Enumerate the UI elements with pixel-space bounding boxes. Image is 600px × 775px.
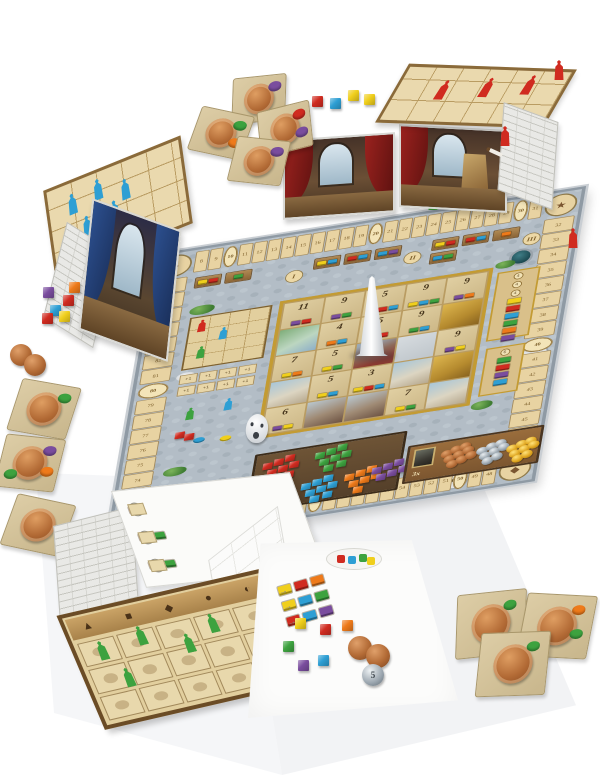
bush — [470, 399, 493, 411]
photo-stage: ● ★ ◆ ◐ ▲ ◆ 8910111213141516171819202122… — [0, 0, 600, 775]
paint-cube — [289, 460, 300, 468]
coin-tile — [475, 631, 552, 698]
bonus-tile: +1 — [198, 370, 218, 382]
green-meeple — [202, 612, 224, 634]
score-track-cell: 9 — [207, 247, 224, 270]
paint-tile — [466, 237, 476, 243]
loose-coins-bottom: 5 — [348, 636, 408, 692]
paint-tile — [322, 366, 332, 372]
market-stall — [492, 226, 521, 241]
paint-tile — [272, 425, 282, 431]
score-track-cell: 19 — [353, 224, 370, 247]
copper-coin — [24, 354, 46, 376]
price-circle: 4 — [513, 272, 524, 280]
paint-tile — [446, 240, 456, 246]
silver-coin: 5 — [362, 664, 384, 686]
paint-tile — [433, 255, 443, 261]
paint-cube — [375, 473, 386, 481]
paint-tile — [444, 253, 454, 259]
paint-tile — [317, 260, 327, 266]
coin-piles — [435, 428, 539, 476]
bonus-tile: +1 — [236, 375, 256, 387]
paint-tile — [327, 259, 337, 265]
bonus-tile: +1 — [176, 385, 196, 397]
paint-tile — [269, 81, 282, 92]
blue-disc — [193, 436, 206, 443]
paint-tile — [198, 279, 208, 285]
paint-tile — [318, 393, 328, 399]
green-meeple — [118, 666, 140, 688]
paint-tile — [301, 318, 311, 324]
window — [320, 143, 352, 185]
paint-cube — [330, 98, 341, 109]
price-circle: 6 — [499, 348, 510, 356]
paint-tile — [409, 327, 419, 333]
market-stall — [373, 245, 402, 260]
paint-tile — [504, 599, 517, 610]
paint-tile — [395, 406, 405, 412]
tile-number: 11 — [283, 299, 324, 315]
bonus-tile: +1 — [179, 373, 199, 385]
paint-cube — [69, 282, 80, 293]
gold-pile — [502, 434, 547, 475]
paint-tile — [353, 387, 363, 393]
paint-tile — [294, 579, 309, 591]
paint-tile — [502, 231, 512, 237]
bonus-tile: +1 — [238, 364, 258, 376]
fresco-tile — [426, 377, 469, 408]
paint-tile — [292, 371, 302, 377]
paint-cube — [295, 618, 306, 629]
paint-tile — [331, 314, 341, 320]
curtain — [365, 134, 393, 198]
market-stall — [343, 250, 372, 265]
section-label: II — [403, 250, 423, 265]
paint-cube — [42, 313, 53, 324]
blue-meeple — [216, 326, 231, 340]
tile-paints — [263, 422, 303, 432]
blue-meeple — [221, 397, 236, 411]
paint-tile — [388, 249, 398, 255]
paint-tile — [492, 379, 506, 387]
yellow-disc — [219, 435, 232, 442]
window — [113, 221, 146, 296]
fresco-tile: 6 — [262, 403, 305, 434]
market-stall — [429, 249, 458, 264]
paint-cube — [320, 624, 331, 635]
fresco-tile — [303, 397, 346, 428]
paint-tile — [454, 294, 464, 300]
market-stall — [194, 273, 223, 288]
red-meeple — [517, 75, 542, 95]
red-meeple — [474, 77, 499, 97]
green-meeple — [193, 345, 208, 359]
paint-tile — [477, 235, 487, 241]
paint-cube — [59, 311, 70, 322]
paint-cube — [43, 287, 54, 298]
bonus-tile: +1 — [218, 367, 238, 379]
paint-tile — [419, 300, 429, 306]
coin-tile — [6, 378, 82, 440]
paint-tile — [364, 385, 374, 391]
paint-cube — [364, 94, 375, 105]
section-label: I — [284, 269, 304, 284]
paint-cube — [298, 660, 309, 671]
paint-tile — [208, 277, 218, 283]
fresco-tile — [344, 390, 387, 421]
paint-tile — [435, 241, 445, 247]
paint-tile — [338, 338, 348, 344]
paint-tile — [314, 590, 329, 602]
coin-tiles-top — [194, 72, 324, 192]
blue-meeple — [65, 191, 81, 217]
paint-tile — [388, 305, 398, 311]
paint-tile — [377, 251, 387, 257]
fresco-tile: 7 — [385, 384, 428, 415]
paint-cube — [283, 641, 294, 652]
paint-tile — [358, 254, 368, 260]
paint-tile — [328, 391, 338, 397]
paint-tile — [319, 605, 334, 617]
paint-tile — [292, 108, 306, 121]
paint-tile — [572, 605, 587, 616]
paint-cube — [342, 620, 353, 631]
paint-tile — [283, 424, 293, 430]
market-stall — [312, 255, 341, 270]
corner-glyph: ★ — [554, 199, 567, 211]
paint-tile — [456, 345, 466, 351]
aid-tile — [127, 503, 147, 516]
paint-tile — [310, 574, 325, 586]
coin-tile — [227, 136, 292, 187]
paint-cube — [341, 450, 352, 458]
paint-tile — [281, 373, 291, 379]
coin-tiles-right — [448, 586, 598, 716]
loose-cubes-left — [20, 280, 90, 340]
paint-cube — [348, 90, 359, 101]
paint-cube — [63, 295, 74, 306]
paint-tile — [375, 384, 385, 390]
paint-tile — [2, 469, 17, 480]
price-circle: 4 — [510, 289, 521, 297]
paint-tile — [429, 298, 439, 304]
tile-paints — [385, 403, 425, 413]
paint-tile — [408, 302, 418, 308]
paint-tile — [234, 273, 244, 279]
blue-meeple — [117, 176, 133, 202]
easel — [461, 153, 488, 191]
paint-tile — [291, 320, 301, 326]
paint-cube — [359, 476, 370, 484]
loose-coins-left — [8, 344, 58, 384]
tile-number: 9 — [447, 273, 488, 289]
paint-cube — [309, 495, 320, 503]
paint-cube — [322, 490, 333, 498]
bonus-tile: +1 — [196, 382, 216, 394]
green-meeple — [130, 624, 152, 646]
paint-tile — [465, 293, 475, 299]
courtyard: +1+1+1+1+1+1+1+1 — [164, 362, 266, 468]
paint-tile — [406, 404, 416, 410]
paint-tile — [527, 641, 541, 651]
player-screen-panel — [399, 124, 507, 213]
paint-cube — [336, 459, 347, 467]
section-label: III — [522, 231, 542, 246]
paint-cube — [386, 469, 397, 477]
paint-tile — [270, 146, 285, 157]
paint-tile — [419, 325, 429, 331]
market-stall — [224, 269, 253, 284]
red-meeple — [430, 80, 455, 100]
paint-cube — [352, 486, 363, 494]
paint-cube — [327, 481, 338, 489]
paint-tile — [445, 347, 455, 353]
green-meeple — [183, 407, 198, 421]
red-meeple — [195, 319, 210, 333]
paint-tile — [327, 340, 337, 346]
price-circle: 4 — [511, 280, 522, 288]
multiplier-label: 3x — [412, 470, 421, 477]
green-meeple — [178, 632, 200, 654]
paint-tile — [378, 306, 388, 312]
green-meeple — [91, 640, 113, 662]
paint-tile — [333, 365, 343, 371]
paint-cube — [318, 655, 329, 666]
coin-tile — [0, 433, 66, 492]
family-portrait — [411, 447, 436, 469]
window — [434, 134, 465, 177]
bonus-tile: +1 — [216, 378, 236, 390]
floor — [401, 185, 505, 211]
paint-tile — [39, 466, 54, 477]
curtain — [401, 126, 428, 192]
palette-emblem — [326, 548, 382, 570]
tile-number: 9 — [406, 279, 447, 295]
paint-tile — [298, 594, 313, 606]
paint-tile — [347, 255, 357, 261]
paint-cube — [323, 464, 334, 472]
paint-tile — [43, 446, 58, 457]
market-stall — [462, 231, 491, 246]
paint-tile — [500, 334, 514, 342]
tile-number: 9 — [324, 292, 365, 308]
paint-tile — [342, 312, 352, 318]
